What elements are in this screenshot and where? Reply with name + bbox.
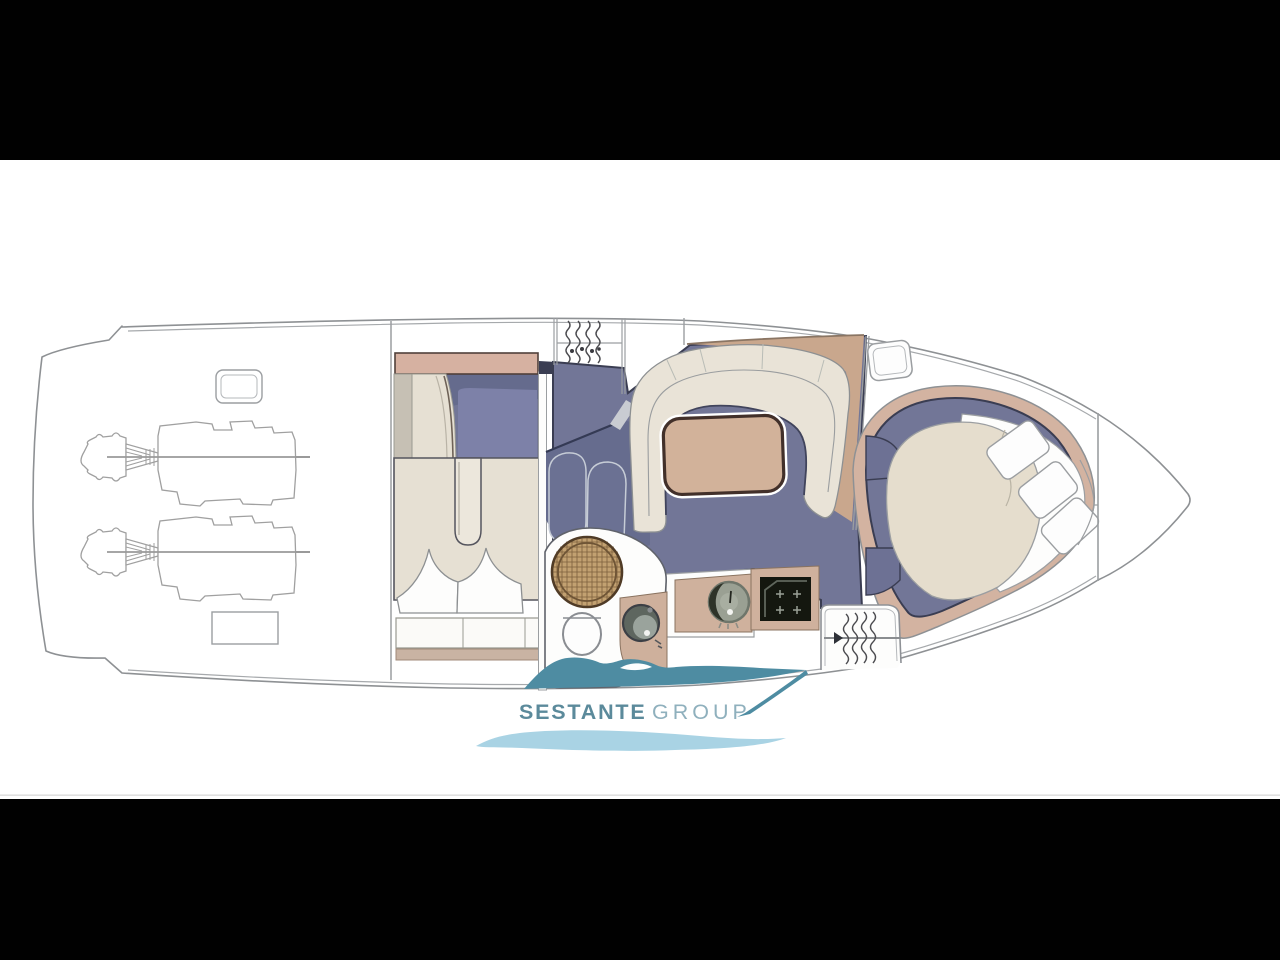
svg-text:SESTANTE: SESTANTE	[519, 700, 647, 724]
svg-text:GROUP: GROUP	[652, 700, 751, 724]
